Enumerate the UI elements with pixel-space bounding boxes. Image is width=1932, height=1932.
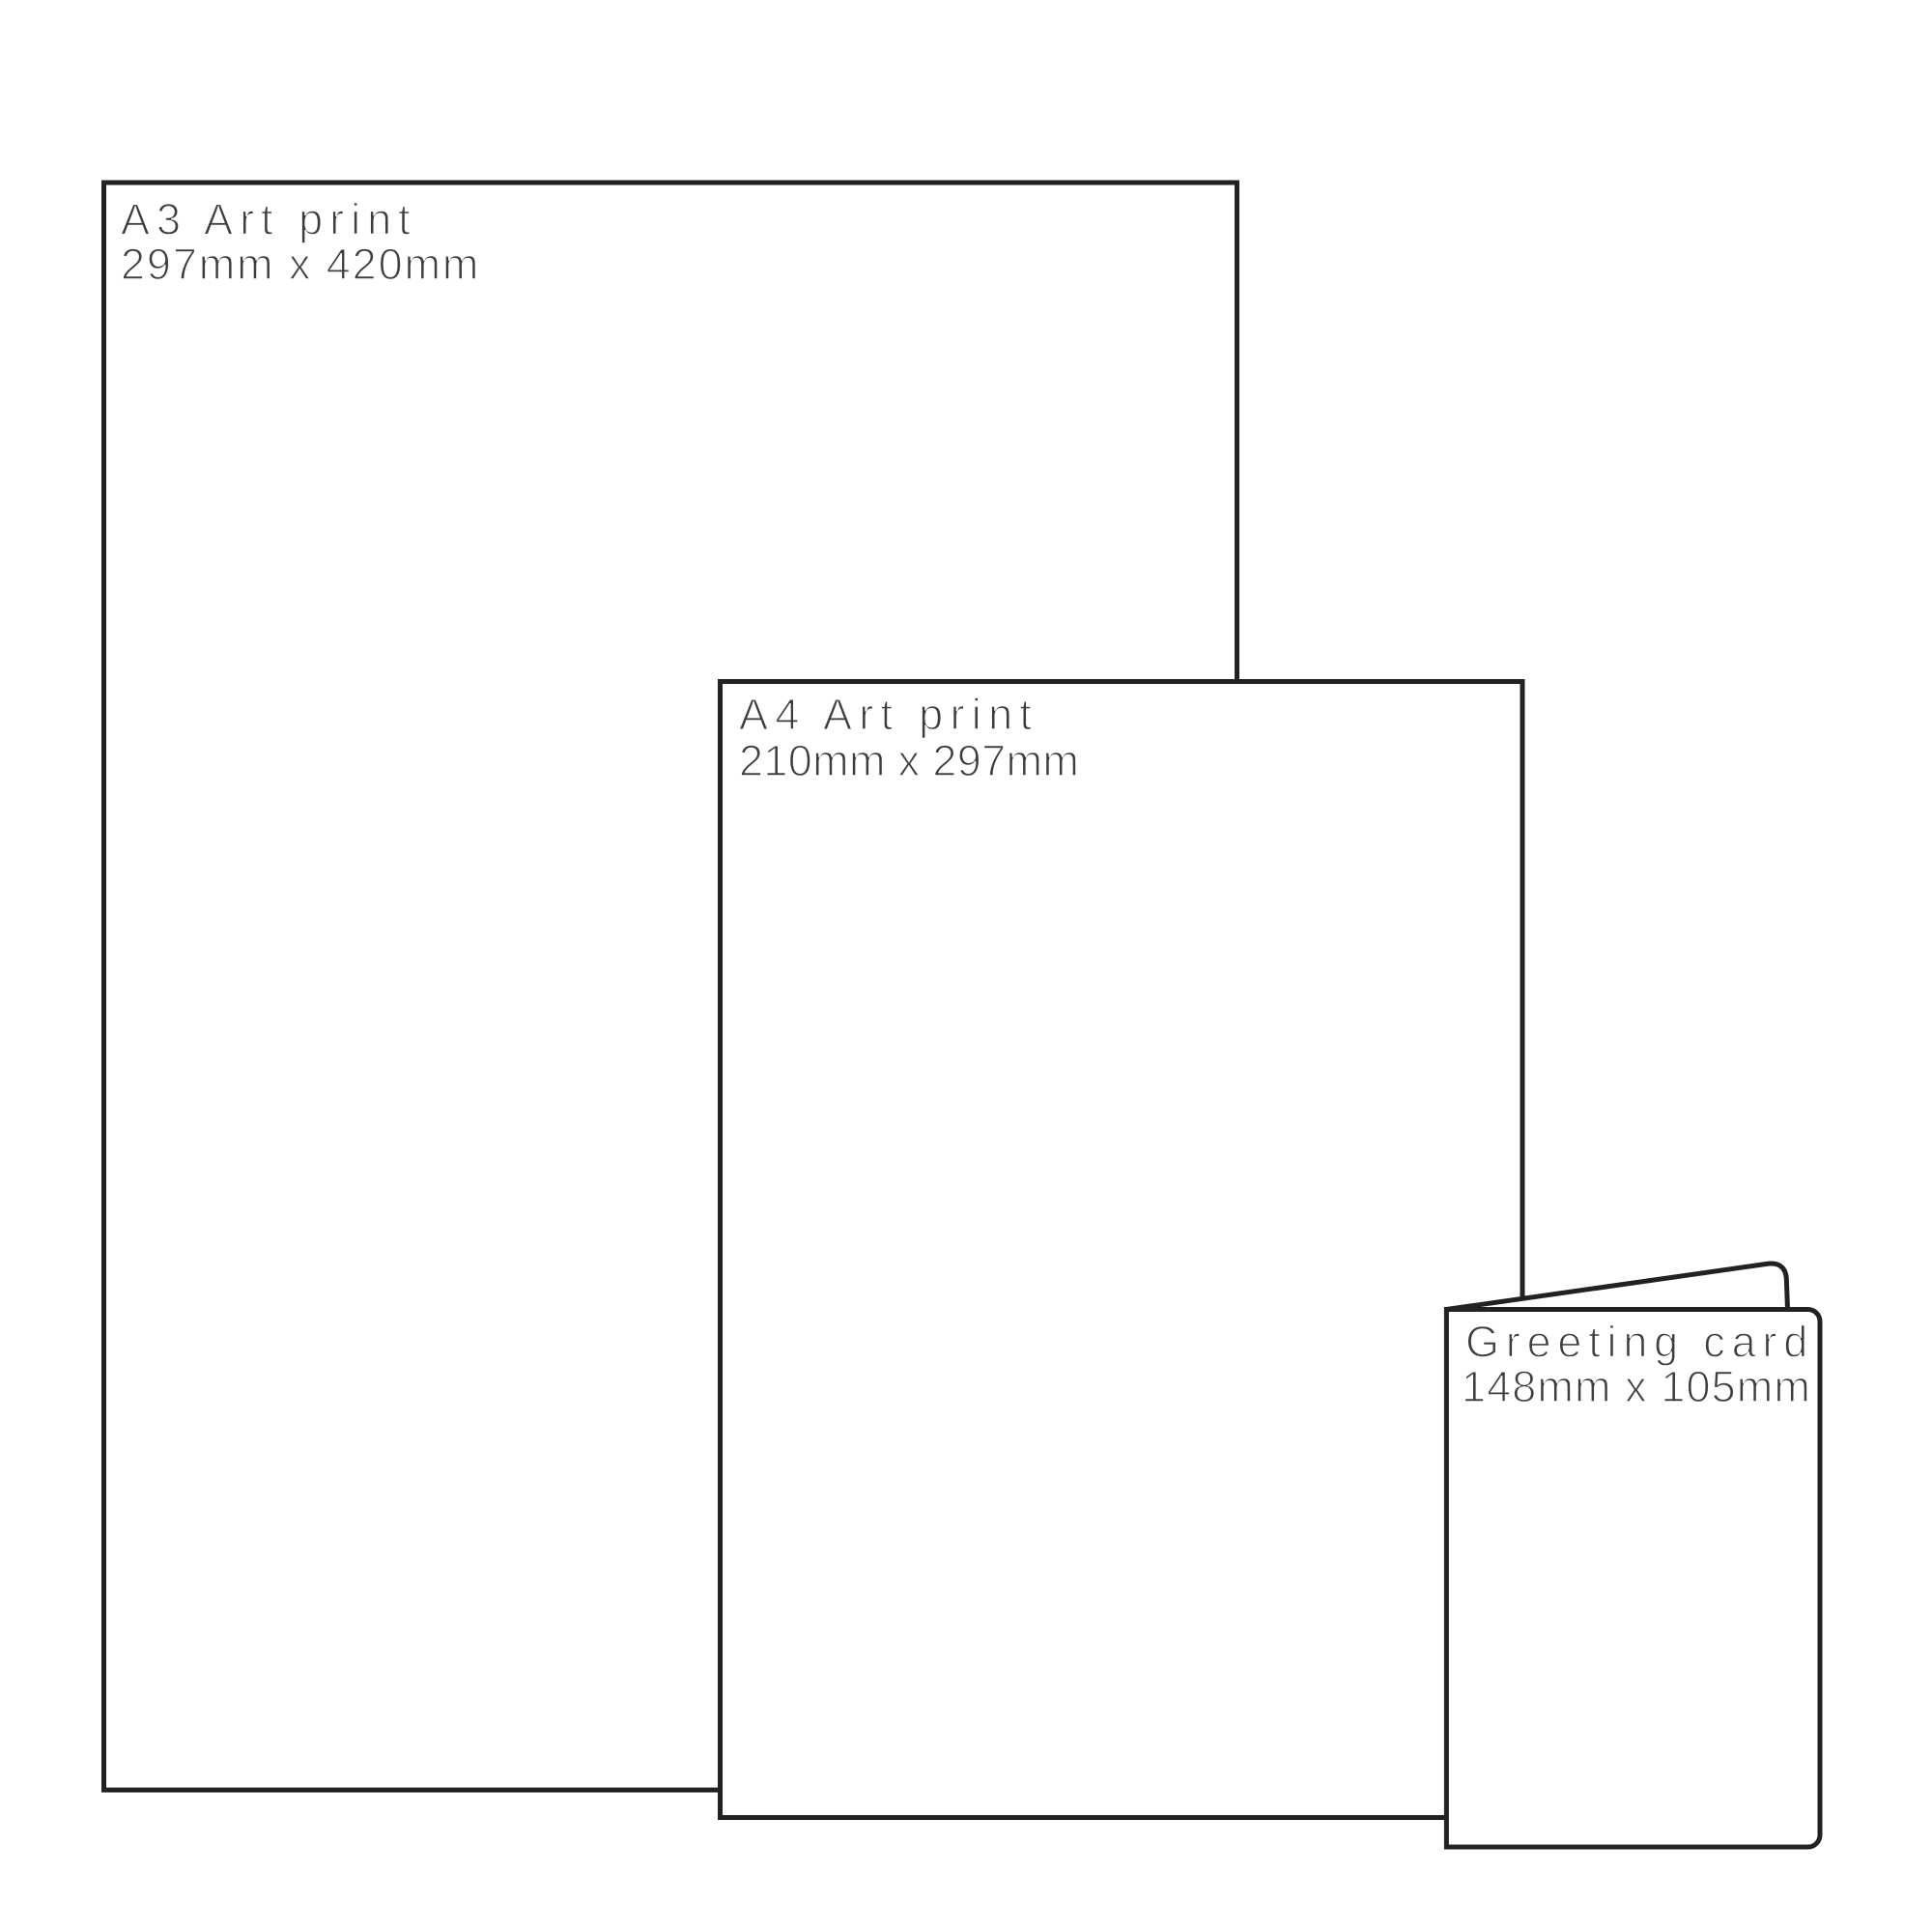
svg-text:148mm x 105mm: 148mm x 105mm [1462, 1362, 1811, 1411]
svg-text:297mm x 420mm: 297mm x 420mm [121, 240, 480, 289]
svg-text:A4 Art print: A4 Art print [739, 690, 1038, 739]
svg-text:Greeting card: Greeting card [1465, 1318, 1814, 1367]
svg-text:210mm x 297mm: 210mm x 297mm [739, 736, 1079, 785]
svg-text:A3 Art print: A3 Art print [121, 195, 417, 244]
